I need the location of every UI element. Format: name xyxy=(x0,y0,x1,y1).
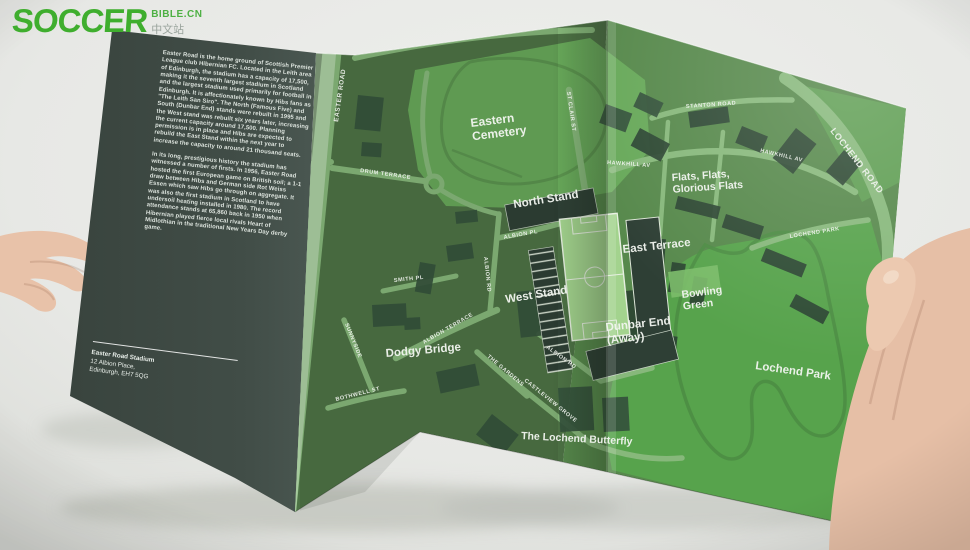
vignette xyxy=(0,0,970,550)
photo-scene: EasternCemeteryNorth StandEast TerraceWe… xyxy=(0,0,970,550)
logo-subtitle: 中文站 xyxy=(151,21,202,37)
soccerbible-logo: SOCCER BIBLE.CN 中文站 xyxy=(12,4,202,37)
intro-paragraph-1: Easter Road is the home ground of Scotti… xyxy=(153,50,315,161)
stadium-intro-text: Easter Road is the home ground of Scotti… xyxy=(143,50,315,254)
intro-paragraph-2: In its long, prestigious history the sta… xyxy=(144,152,305,248)
logo-suffix: BIBLE.CN xyxy=(151,9,202,20)
brochure-photo: EasternCemeteryNorth StandEast TerraceWe… xyxy=(0,0,970,550)
logo-wordmark: SOCCER xyxy=(11,4,148,37)
